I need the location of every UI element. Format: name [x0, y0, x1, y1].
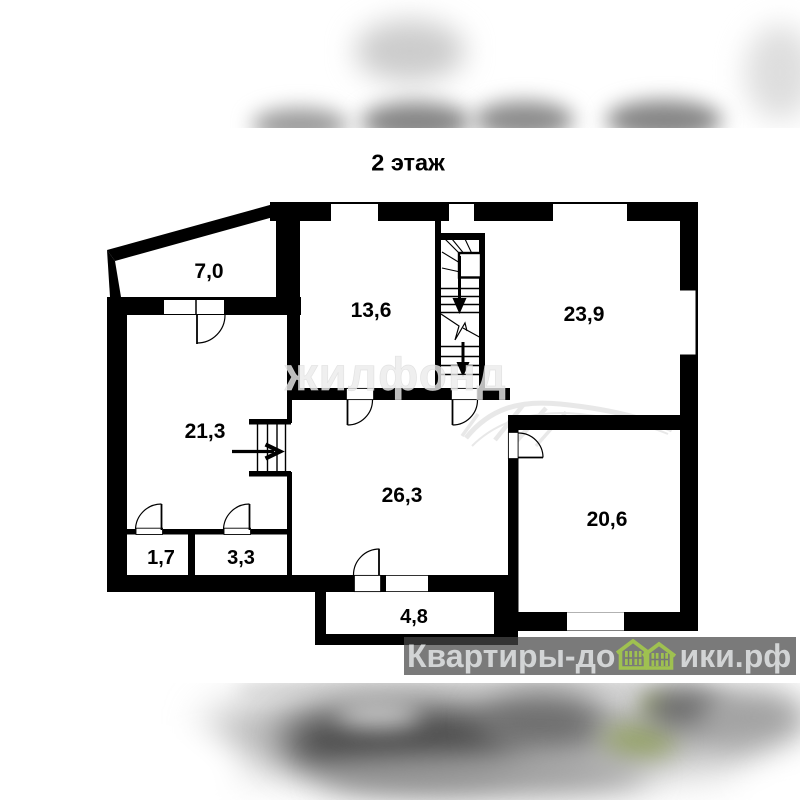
svg-text:4,8: 4,8	[400, 606, 428, 628]
svg-text:2 этаж: 2 этаж	[371, 150, 445, 176]
svg-text:7,0: 7,0	[194, 260, 223, 283]
svg-text:1,7: 1,7	[147, 547, 175, 569]
svg-text:3,3: 3,3	[227, 547, 255, 569]
svg-text:26,3: 26,3	[382, 484, 423, 507]
svg-text:жилфонд: жилфонд	[284, 348, 507, 400]
svg-text:23,9: 23,9	[564, 303, 605, 326]
svg-text:21,3: 21,3	[185, 420, 226, 443]
svg-text:13,6: 13,6	[351, 299, 392, 322]
svg-text:20,6: 20,6	[587, 508, 628, 531]
